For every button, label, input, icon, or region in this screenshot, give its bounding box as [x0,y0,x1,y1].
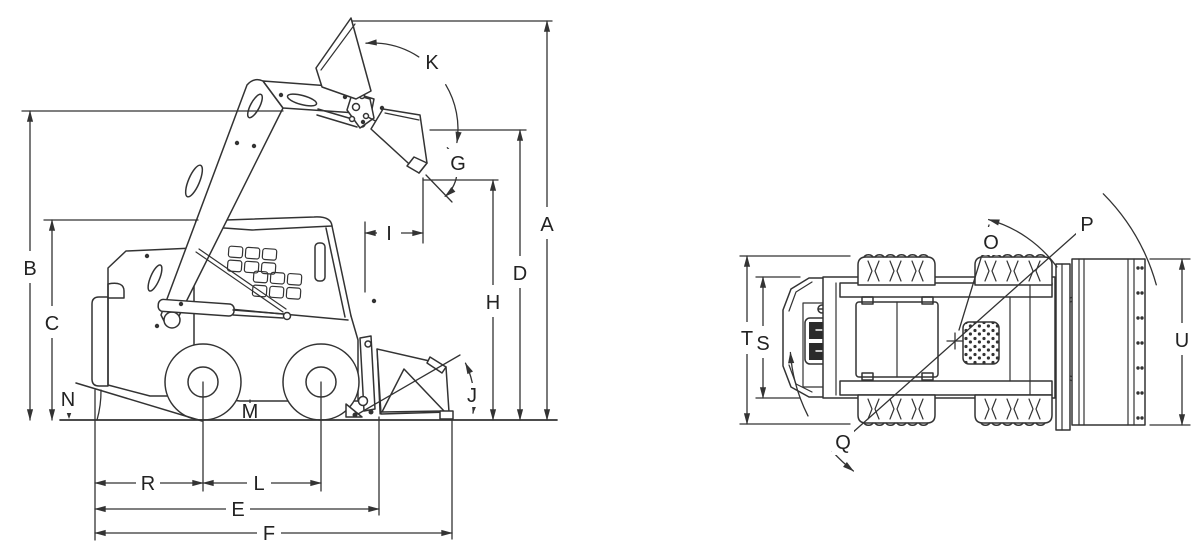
dim-label-G: G [450,153,466,175]
dim-label-S: S [756,333,769,355]
dim-label-P: P [1080,214,1093,236]
bellcrank [347,94,374,128]
dump-angle-line-G [426,175,452,202]
dim-label-O: O [983,232,999,254]
dim-label-T: T [741,328,753,350]
engine-vent-grid [963,322,999,364]
dim-label-N: N [61,389,75,411]
attach-plate-top [1056,264,1070,430]
dim-label-D: D [513,263,527,285]
dim-label-K: K [425,52,439,74]
dim-label-H: H [486,292,500,314]
bucket-ground-position [346,336,453,419]
dim-label-A: A [540,214,554,236]
dim-label-B: B [23,258,36,280]
dim-label-J: J [467,385,477,407]
angle-arc-N [97,390,101,420]
dim-label-M: M [242,401,259,423]
dimension-diagram: A B C D E F G H I J K L M N O P Q R S T … [0,0,1200,550]
boom-arm [145,80,385,328]
top-view [740,194,1190,471]
dim-label-E: E [231,499,244,521]
bucket-rollback-position [316,18,371,99]
angle-arc-K [366,43,419,57]
bucket-dump-position [371,109,427,173]
angle-arc-J [466,363,473,384]
side-view [22,18,557,540]
dim-label-U: U [1175,330,1189,352]
diagram-page: A B C D E F G H I J K L M N O P Q R S T … [0,0,1200,550]
dim-label-R: R [141,473,155,495]
cab-door-handle [315,243,325,281]
dim-label-C: C [45,313,59,335]
bucket-top [1072,259,1145,425]
dim-label-L: L [253,473,264,495]
cab-window-mesh [227,246,302,299]
dim-label-Q: Q [835,432,851,454]
dim-label-F: F [263,523,275,545]
dim-label-I: I [386,223,392,245]
